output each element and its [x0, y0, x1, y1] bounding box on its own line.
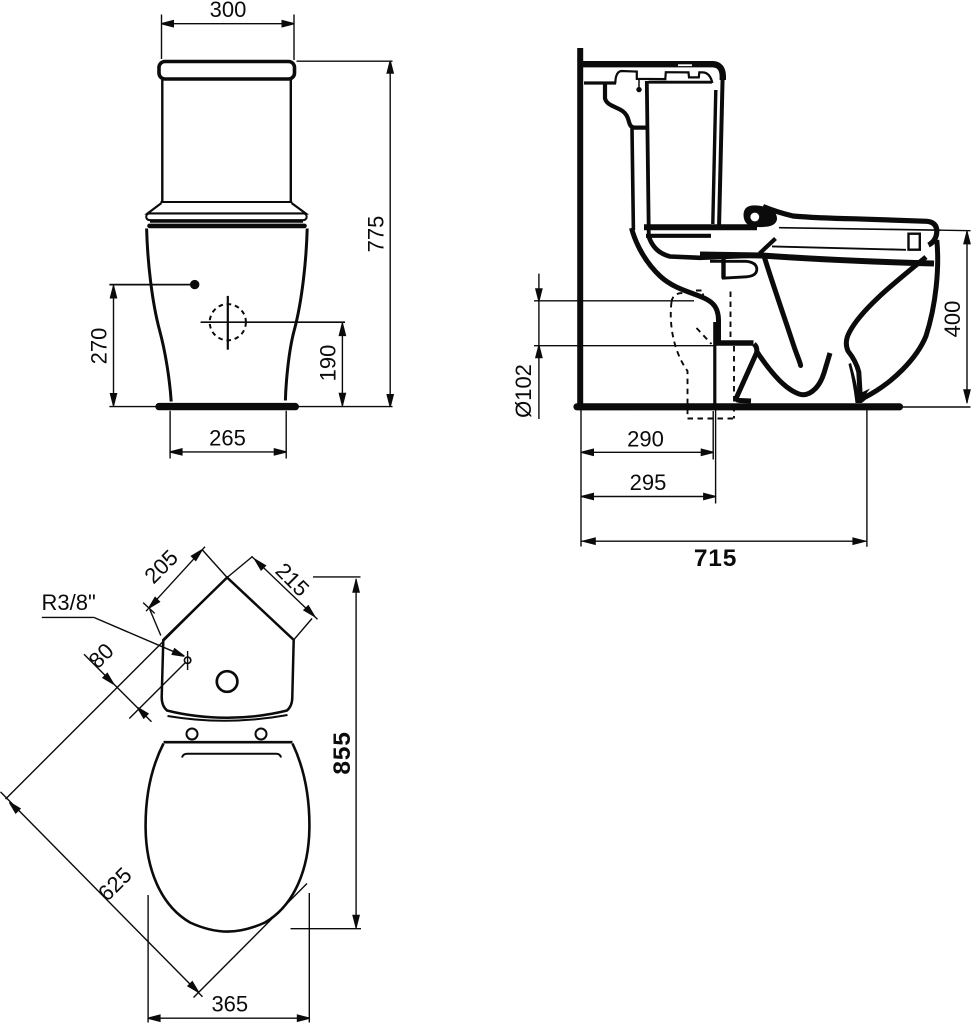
svg-text:R3/8": R3/8" — [42, 590, 96, 615]
svg-text:300: 300 — [210, 0, 247, 22]
svg-text:365: 365 — [211, 992, 248, 1017]
svg-text:190: 190 — [316, 345, 341, 382]
svg-text:265: 265 — [209, 426, 246, 451]
svg-text:775: 775 — [364, 216, 389, 253]
svg-text:270: 270 — [87, 328, 112, 365]
svg-text:715: 715 — [694, 545, 737, 572]
svg-text:290: 290 — [627, 427, 664, 452]
svg-text:295: 295 — [630, 470, 667, 495]
svg-text:855: 855 — [329, 731, 356, 774]
svg-text:Ø102: Ø102 — [511, 364, 536, 418]
svg-text:400: 400 — [940, 301, 965, 338]
